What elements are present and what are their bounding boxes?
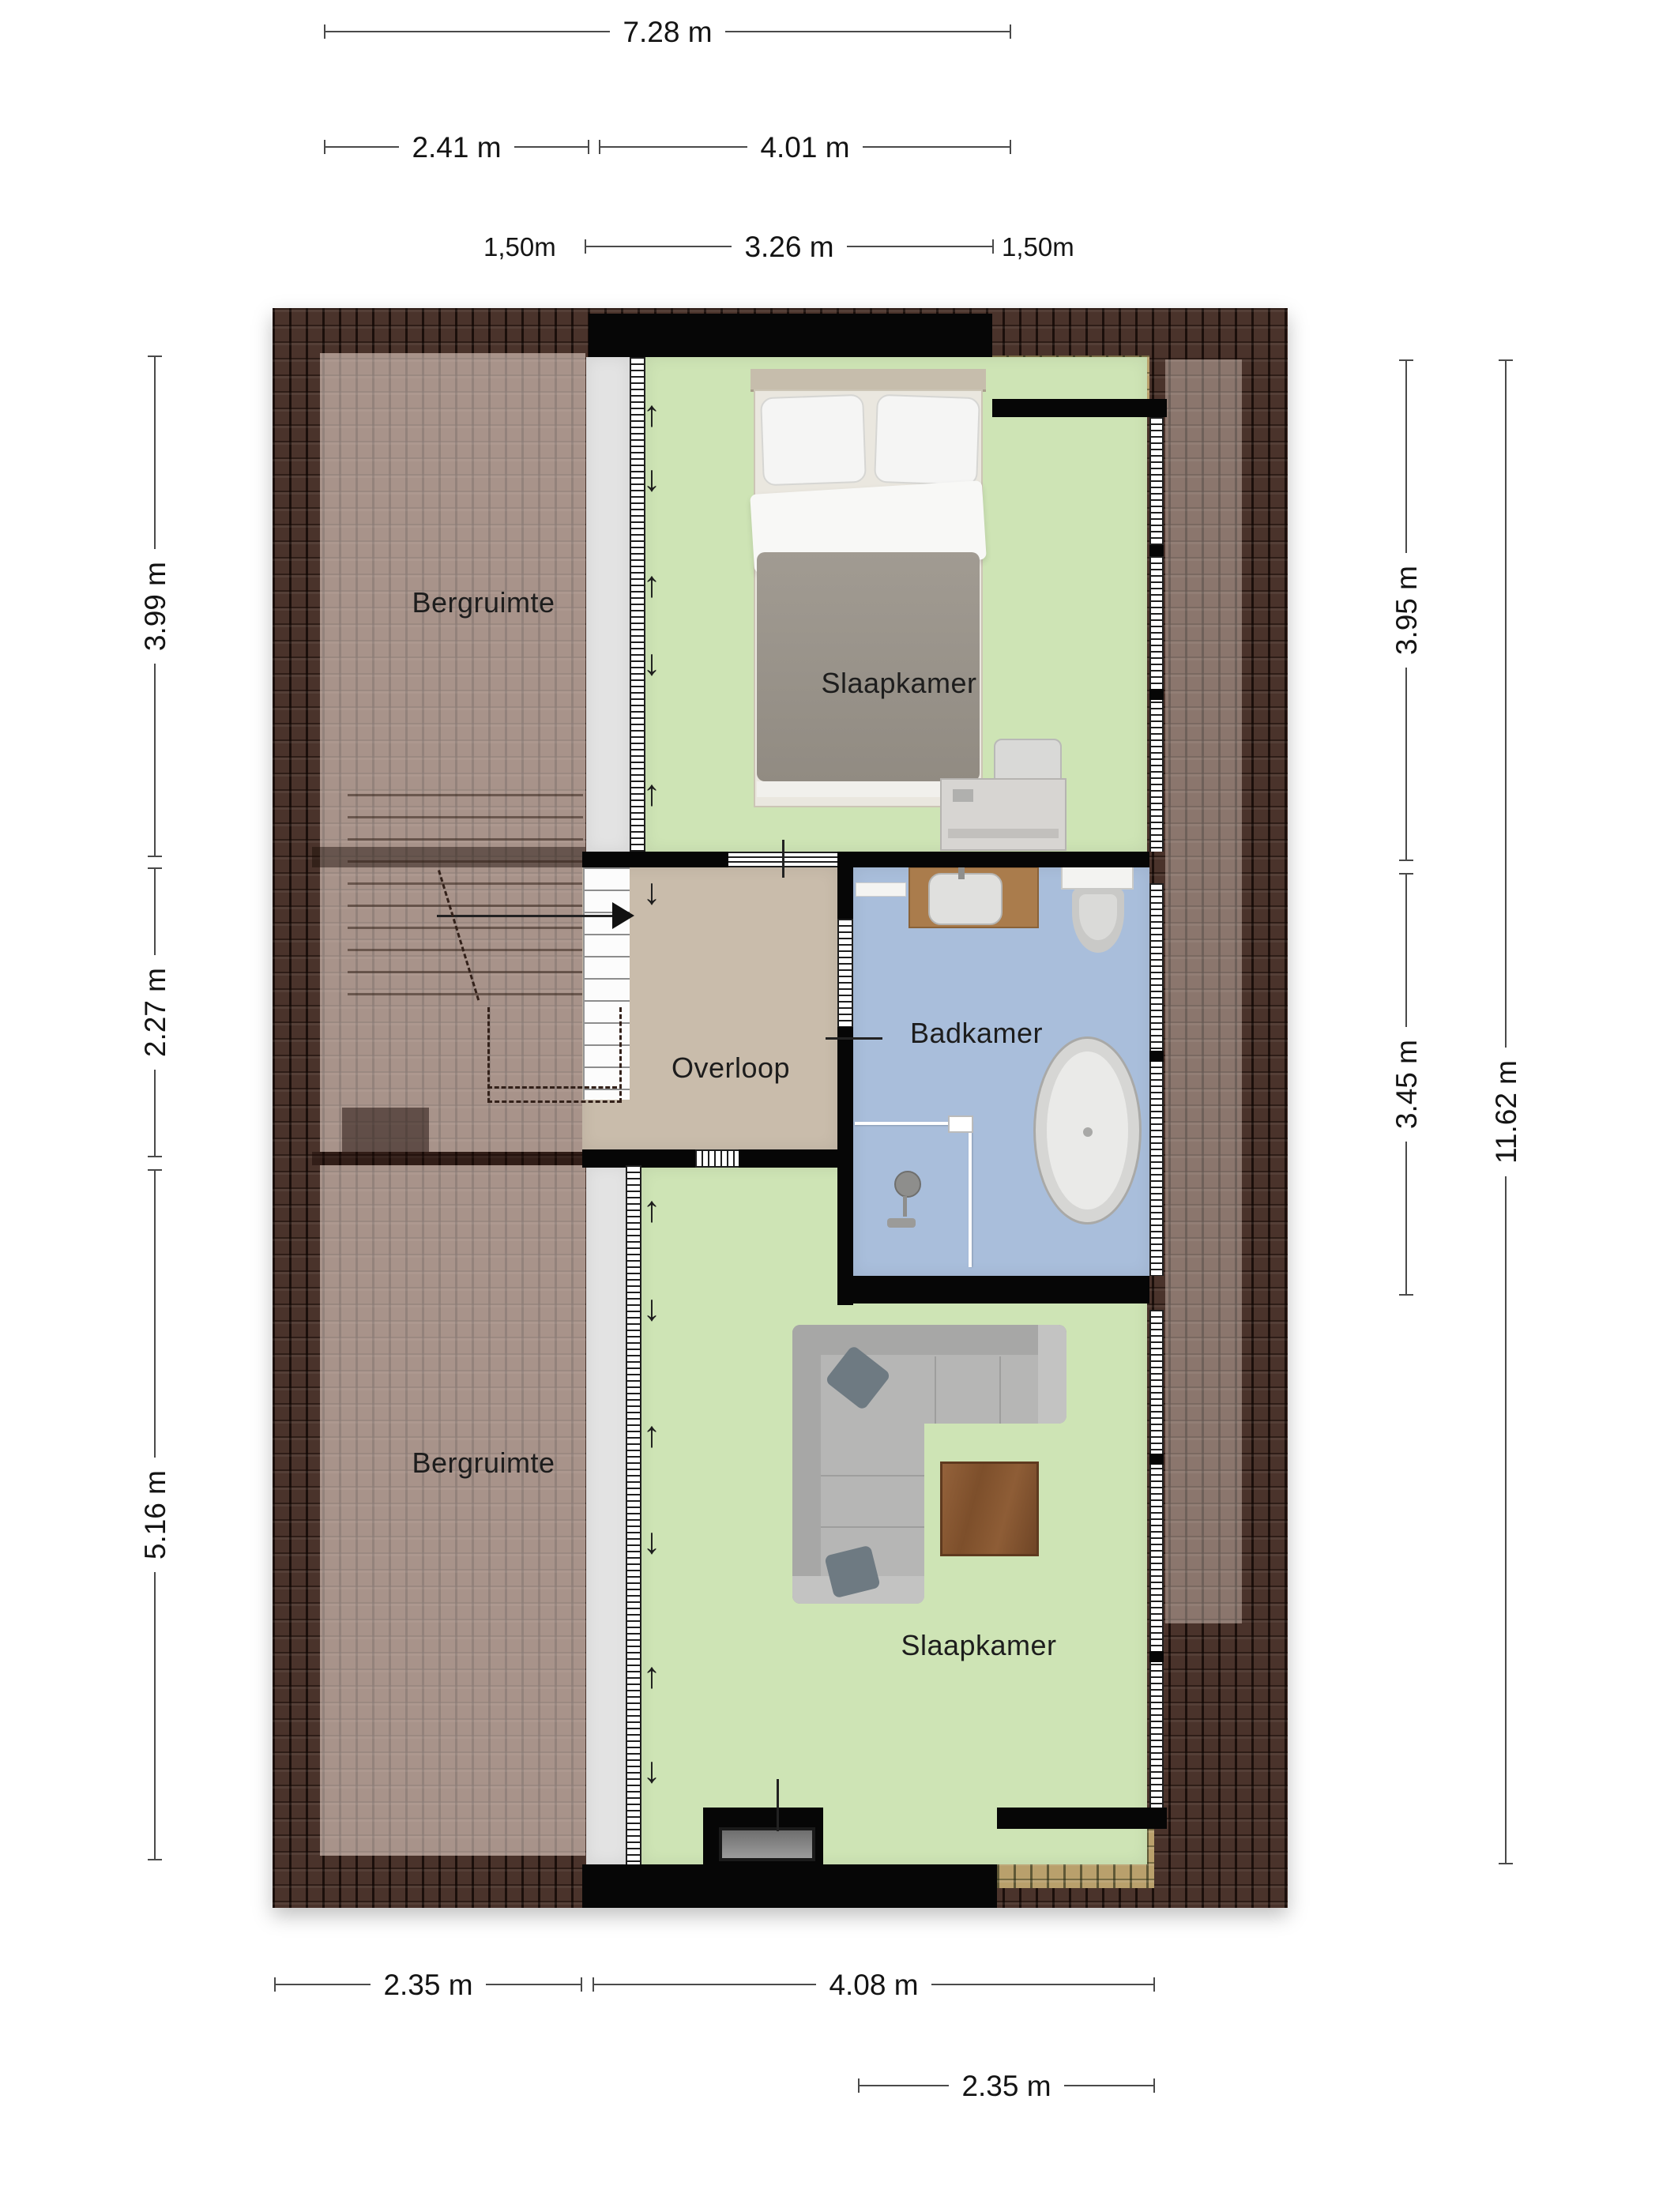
dimension-label: 2.35 m [371, 1970, 485, 1999]
window-divider [1149, 545, 1164, 556]
sofa-cushion-seam [821, 1526, 924, 1528]
dimension-line [1064, 2085, 1153, 2086]
dimension-line [600, 146, 747, 148]
bed-pillow-right [874, 394, 980, 487]
room-label-bergruimte-top: Bergruimte [412, 586, 555, 619]
toilet-seat [1079, 894, 1117, 940]
sofa-backrest-left [792, 1325, 821, 1604]
room-label-bergruimte-bottom: Bergruimte [412, 1446, 555, 1480]
dimension-label: 7.28 m [610, 17, 724, 47]
sofa-cushion-seam [935, 1356, 936, 1424]
slope-arrow-down-icon: ↓ [643, 460, 661, 496]
wall-bottom-exterior [582, 1864, 997, 1908]
slope-arrow-up-icon: ↑ [643, 395, 661, 431]
roof-overlay-storage-bottom [320, 1165, 585, 1856]
sofa-armrest-right [1038, 1325, 1066, 1424]
door-axis-tick [777, 1779, 779, 1831]
dimension-line [154, 664, 156, 856]
window-divider [1149, 1051, 1164, 1062]
slope-arrow-up-icon: ↑ [643, 1416, 661, 1452]
knee-wall-window-bottom [626, 1165, 641, 1864]
dimension-label: 2.41 m [399, 133, 513, 162]
dimension-line [154, 1171, 156, 1458]
dimension-tick [1153, 1977, 1155, 1992]
door-axis-tick [782, 840, 784, 878]
dimension-bottom-left: 2.35 m [274, 1970, 582, 1999]
dimension-line [1505, 1176, 1507, 1863]
dimension-top-right: 4.01 m [599, 133, 1011, 161]
low-headroom-strip-top [586, 357, 630, 852]
dimension-tick [148, 1156, 162, 1157]
roof-overlay-right [1165, 359, 1242, 1623]
bathtub [1033, 1036, 1142, 1224]
sofa-cushion-seam [999, 1356, 1001, 1424]
slope-arrow-up-icon: ↑ [643, 1657, 661, 1693]
dimension-label: 2.27 m [141, 955, 170, 1070]
stairs-dashed-line [487, 1086, 617, 1089]
dimension-line [725, 31, 1010, 32]
dimension-tick [148, 856, 162, 857]
dimension-total-width: 7.28 m [324, 17, 1011, 46]
dimension-line [1405, 361, 1407, 553]
shower-screen-right [969, 1122, 972, 1267]
dimension-line [154, 869, 156, 955]
stairs-direction-arrow-icon [612, 902, 634, 929]
dimension-tick [992, 239, 994, 254]
dimension-right-mid: 3.45 m [1392, 873, 1420, 1296]
window-strip-bathroom [1149, 883, 1164, 1276]
door-opening-bedroom-bottom [695, 1149, 739, 1168]
slope-arrow-down-icon: ↓ [643, 1522, 661, 1559]
room-label-slaapkamer-top: Slaapkamer [821, 667, 976, 700]
wall-top-exterior [589, 314, 992, 357]
dimension-line [325, 31, 610, 32]
dimension-line [860, 2085, 949, 2086]
dimension-line [1505, 361, 1507, 1048]
wall-landing-bottom-right [739, 1149, 840, 1168]
dimension-line [514, 146, 588, 148]
dimension-left-top: 3.99 m [141, 355, 169, 857]
sofa-backrest-top [792, 1325, 1066, 1355]
dimension-right-total: 11.62 m [1492, 359, 1520, 1864]
dimension-tick [148, 1859, 162, 1860]
wall-bedroom-landing [582, 852, 728, 867]
dimension-line [325, 146, 399, 148]
double-bed [750, 369, 986, 807]
dimension-tick [581, 1977, 582, 1992]
shower-arm [903, 1196, 907, 1217]
wall-bathroom-left-lower [837, 1027, 853, 1305]
sofa-cushion-seam [821, 1475, 924, 1477]
window-divider [1149, 1651, 1164, 1662]
dimension-tick [1010, 140, 1011, 154]
dimension-bottom-mid: 4.08 m [592, 1970, 1155, 1999]
roof-edge-block [342, 1108, 429, 1152]
low-headroom-strip-bottom [586, 1165, 630, 1864]
desk-accessory [953, 789, 973, 802]
window-strip-bedroom-top [1149, 417, 1164, 852]
dimension-label: 11.62 m [1492, 1048, 1521, 1176]
dimension-label: 3.99 m [141, 549, 170, 664]
dimension-line [154, 1572, 156, 1859]
dimension-tick [1153, 2078, 1155, 2093]
shower-fixture-box [948, 1115, 973, 1133]
dimension-line [276, 1984, 371, 1985]
dimension-left-mid: 2.27 m [141, 867, 169, 1157]
slope-arrow-down-icon: ↓ [643, 873, 661, 909]
dimension-label: 4.08 m [816, 1970, 931, 1999]
shower-head-icon [894, 1171, 921, 1198]
wall-bathroom-top [853, 852, 1149, 867]
window-divider [1149, 1454, 1164, 1465]
dimension-tick [1499, 1863, 1513, 1864]
bed-headboard [750, 369, 986, 392]
room-label-slaapkamer-bottom: Slaapkamer [901, 1629, 1056, 1662]
dimension-headroom-right: 1,50m [1002, 234, 1074, 260]
dimension-line [586, 246, 732, 247]
wall-dormer-top-right [992, 399, 1167, 417]
dimension-left-bottom: 5.16 m [141, 1169, 169, 1860]
dimension-tick [1399, 860, 1413, 861]
dimension-tick [1010, 24, 1011, 39]
door-opening-bathroom [837, 919, 853, 1027]
dimension-line [594, 1984, 816, 1985]
bathroom-shelf [856, 882, 906, 897]
dimension-line [154, 357, 156, 549]
dimension-right-top: 3.95 m [1392, 359, 1420, 861]
dimension-line [847, 246, 992, 247]
bed-pillow-left [760, 394, 867, 487]
dimension-headroom-width: 3.26 m [585, 232, 994, 261]
dimension-line [1405, 1142, 1407, 1294]
dimension-tick [1399, 1294, 1413, 1296]
dimension-line [486, 1984, 581, 1985]
slope-arrow-down-icon: ↓ [643, 1751, 661, 1788]
stairs-direction-line [437, 915, 612, 917]
stair-treads-under-roof [348, 794, 583, 1003]
window-divider [1149, 689, 1164, 700]
desk-drawer [948, 829, 1059, 838]
dimension-headroom-left: 1,50m [483, 234, 556, 260]
desk [940, 778, 1066, 851]
room-label-badkamer: Badkamer [910, 1017, 1043, 1050]
slope-arrow-up-icon: ↑ [643, 774, 661, 811]
dimension-label: 3.45 m [1392, 1027, 1421, 1142]
dimension-line [1405, 668, 1407, 860]
dimension-label: 3.95 m [1392, 553, 1421, 668]
bathroom-sink [928, 873, 1003, 925]
dimension-line [154, 1070, 156, 1156]
window-strip-bedroom-bottom [1149, 1310, 1164, 1808]
shower-tap [887, 1218, 916, 1228]
dormer-window-bottom [719, 1827, 815, 1861]
wall-bathroom-bottom [837, 1276, 1149, 1303]
bathtub-drain-icon [1083, 1127, 1093, 1137]
slope-arrow-up-icon: ↑ [643, 1191, 661, 1227]
floorplan: ↑ ↓ ↑ ↓ ↑ ↓ ↑ ↓ ↑ ↓ ↑ ↓ Bergruimte Slaap… [273, 308, 1288, 1908]
dimension-line [931, 1984, 1153, 1985]
dimension-label: 3.26 m [732, 232, 846, 261]
slope-arrow-up-icon: ↑ [643, 566, 661, 602]
slope-arrow-down-icon: ↓ [643, 1289, 661, 1326]
door-axis-tick [826, 1037, 882, 1040]
room-label-overloop: Overloop [671, 1051, 790, 1085]
dimension-bottom-right: 2.35 m [858, 2071, 1155, 2100]
dimension-label: 4.01 m [747, 133, 862, 162]
coffee-table [940, 1461, 1039, 1556]
dimension-tick [588, 140, 589, 154]
floorplan-page: { "plan": { "rooms": { "bergruimte_top":… [0, 0, 1659, 2212]
dimension-line [1405, 875, 1407, 1027]
slope-arrow-down-icon: ↓ [643, 644, 661, 680]
dimension-line [863, 146, 1010, 148]
dimension-label: 5.16 m [141, 1458, 170, 1572]
roof-edge-line-mid [312, 1152, 585, 1165]
wall-dormer-bottom-right [997, 1808, 1167, 1829]
dimension-label: 2.35 m [949, 2071, 1063, 2101]
wall-bathroom-left-upper [837, 852, 853, 919]
dimension-top-left: 2.41 m [324, 133, 589, 161]
